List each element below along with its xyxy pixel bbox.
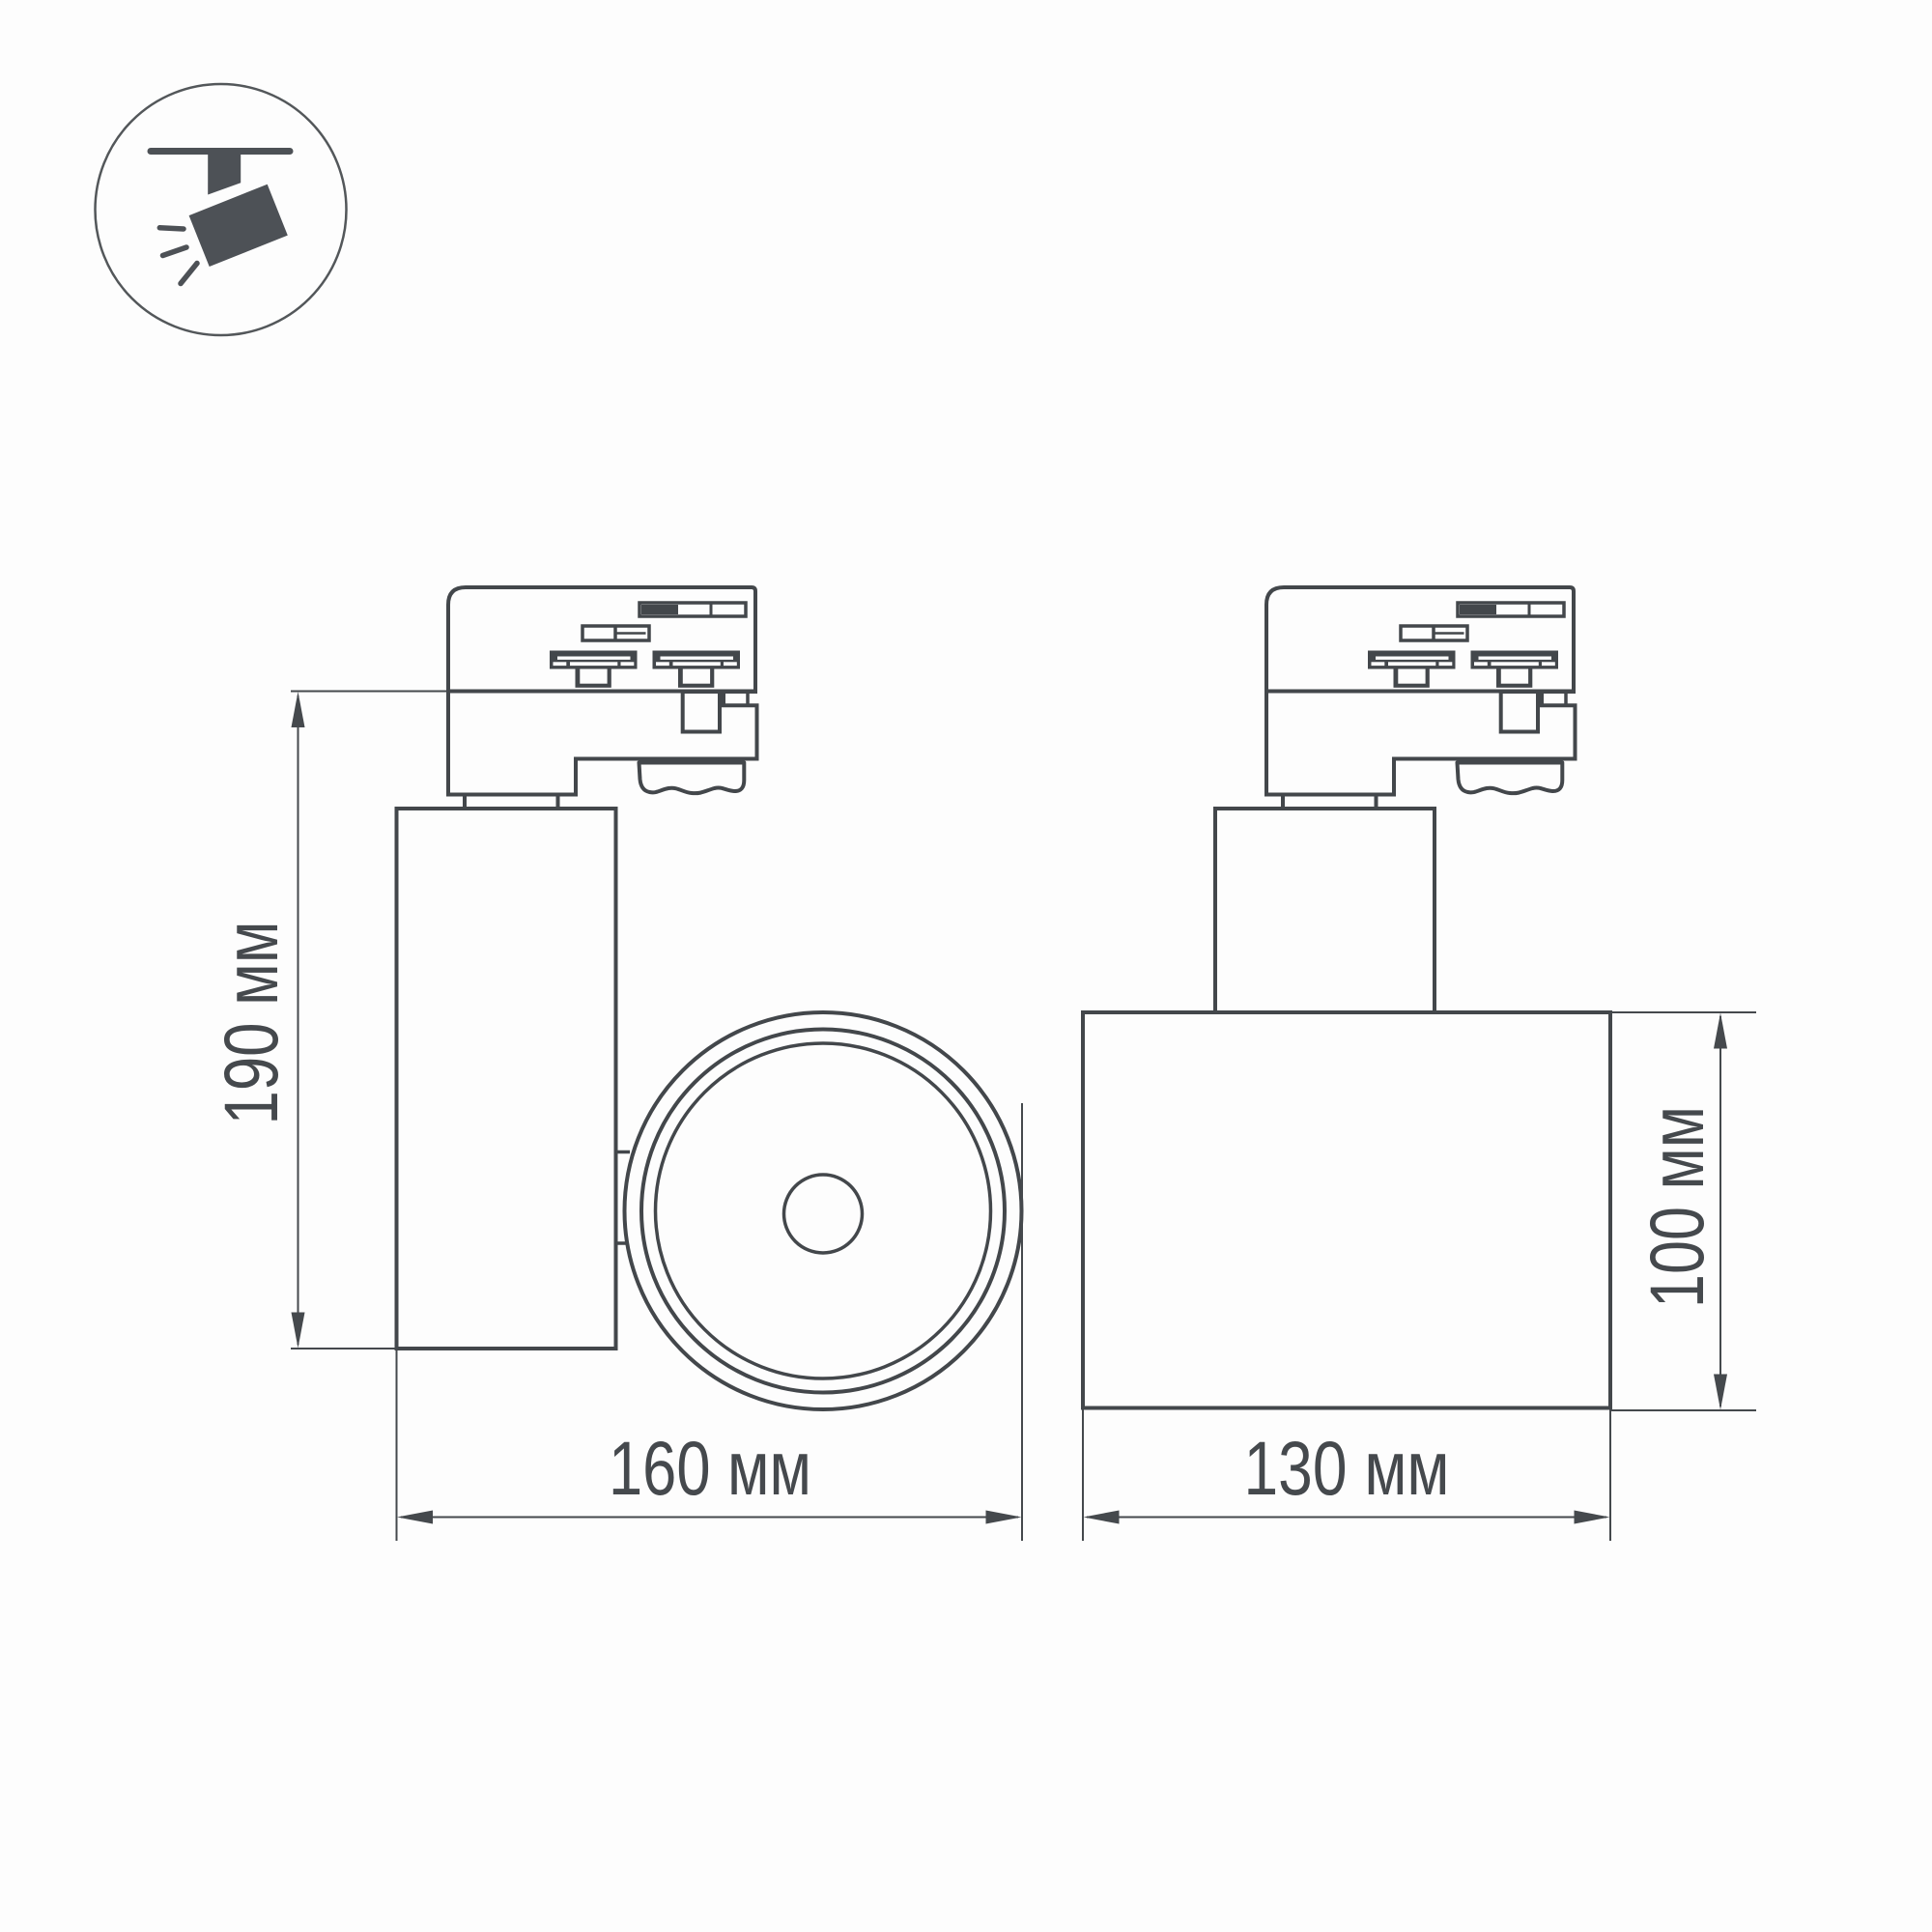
- svg-text:130 мм: 130 мм: [1244, 1425, 1450, 1511]
- svg-text:190 мм: 190 мм: [208, 922, 294, 1125]
- svg-text:160 мм: 160 мм: [609, 1425, 811, 1511]
- svg-text:100 мм: 100 мм: [1634, 1106, 1719, 1308]
